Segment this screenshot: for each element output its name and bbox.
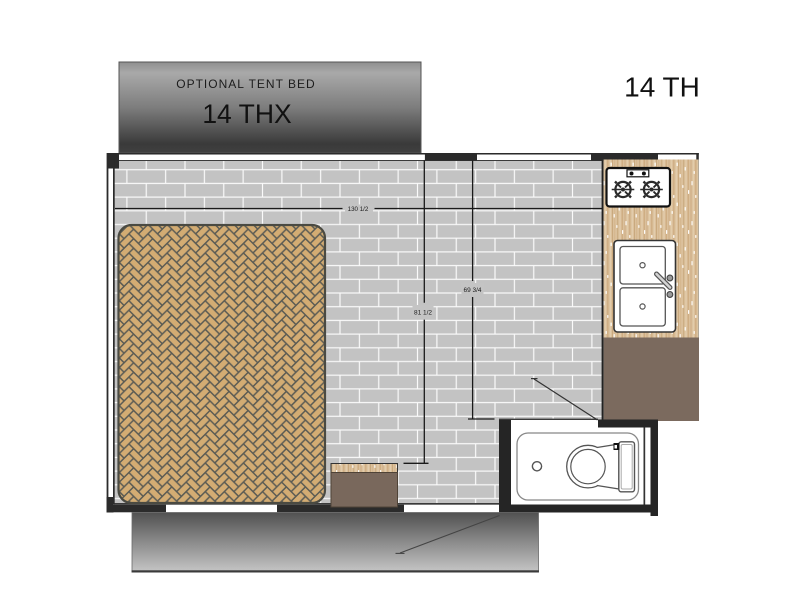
svg-text:OPTIONAL TENT BED: OPTIONAL TENT BED xyxy=(176,77,315,91)
svg-text:81 1/2: 81 1/2 xyxy=(414,309,432,316)
svg-text:130 1/2: 130 1/2 xyxy=(348,206,369,213)
svg-text:69 3/4: 69 3/4 xyxy=(463,287,481,294)
svg-text:14 THX: 14 THX xyxy=(202,99,292,129)
svg-text:14 TH: 14 TH xyxy=(624,72,700,103)
